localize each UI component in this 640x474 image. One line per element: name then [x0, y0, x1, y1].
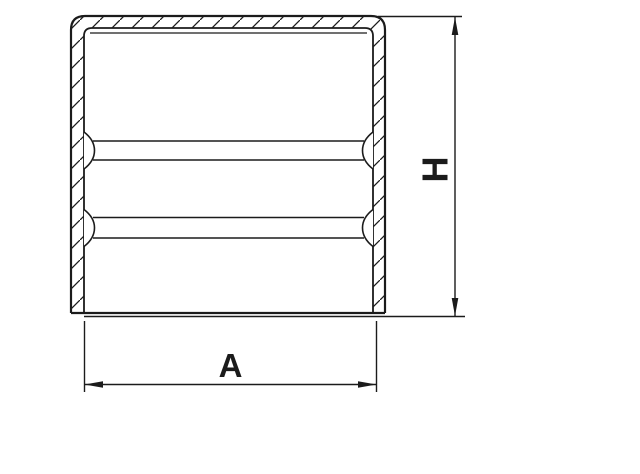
- height-arrow-up: [452, 17, 459, 35]
- drawing-page: H A: [0, 0, 640, 474]
- cap-inner-contour: [84, 28, 373, 313]
- technical-drawing-canvas: H A: [0, 0, 640, 474]
- cap-outer-contour: [71, 16, 385, 313]
- height-dimension-label: H: [415, 157, 456, 183]
- height-arrow-down: [452, 298, 459, 316]
- width-dimension-label: A: [219, 347, 243, 384]
- width-arrow-left: [85, 381, 104, 388]
- width-arrow-right: [358, 381, 377, 388]
- cap-wall-hatching: [71, 16, 385, 313]
